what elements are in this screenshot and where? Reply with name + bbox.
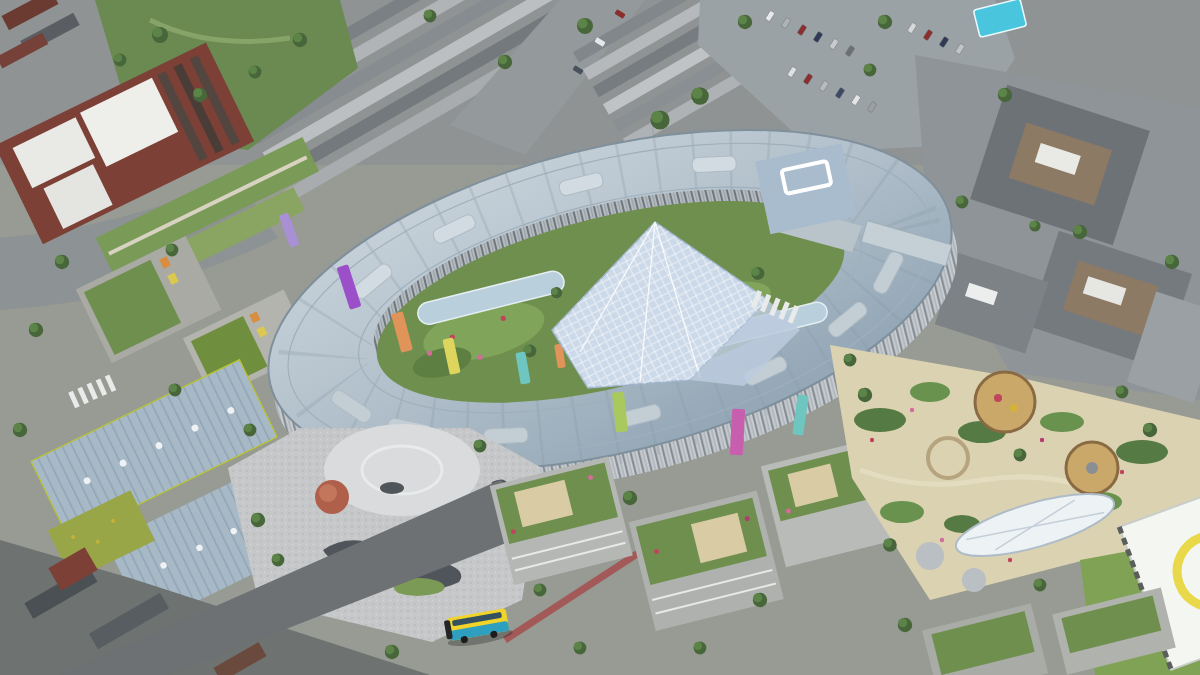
garden-pad (962, 568, 986, 592)
facade-fin (730, 409, 745, 456)
aerial-rendering-hospital-campus (0, 0, 1200, 675)
plaza-pool (380, 482, 404, 494)
circular-garden (1066, 442, 1118, 494)
rendering-canvas (0, 0, 1200, 675)
garden-pad (916, 542, 944, 570)
autumn-tree (315, 480, 349, 514)
circular-garden (975, 372, 1035, 432)
